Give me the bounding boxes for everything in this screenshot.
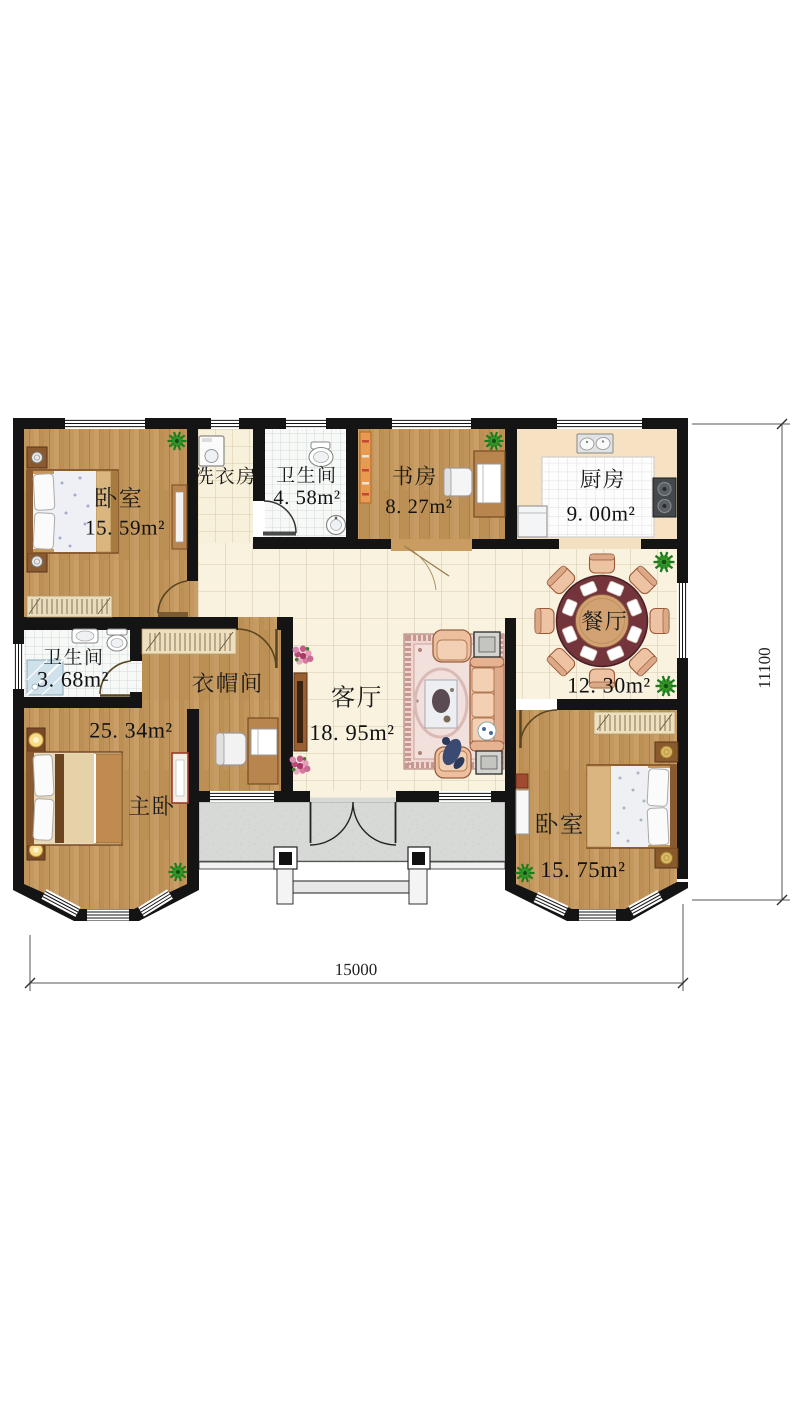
svg-text:11100: 11100 [755, 647, 774, 688]
svg-text:18. 95m²: 18. 95m² [309, 720, 394, 745]
svg-text:25. 34m²: 25. 34m² [89, 718, 173, 743]
svg-text:15000: 15000 [335, 960, 378, 979]
svg-text:15. 75m²: 15. 75m² [540, 857, 625, 882]
svg-text:12. 30m²: 12. 30m² [567, 673, 651, 698]
svg-text:9. 00m²: 9. 00m² [567, 501, 636, 525]
svg-text:15. 59m²: 15. 59m² [85, 515, 165, 539]
svg-text:4. 58m²: 4. 58m² [273, 487, 340, 509]
svg-text:8. 27m²: 8. 27m² [385, 496, 452, 518]
svg-text:3. 68m²: 3. 68m² [37, 667, 109, 692]
